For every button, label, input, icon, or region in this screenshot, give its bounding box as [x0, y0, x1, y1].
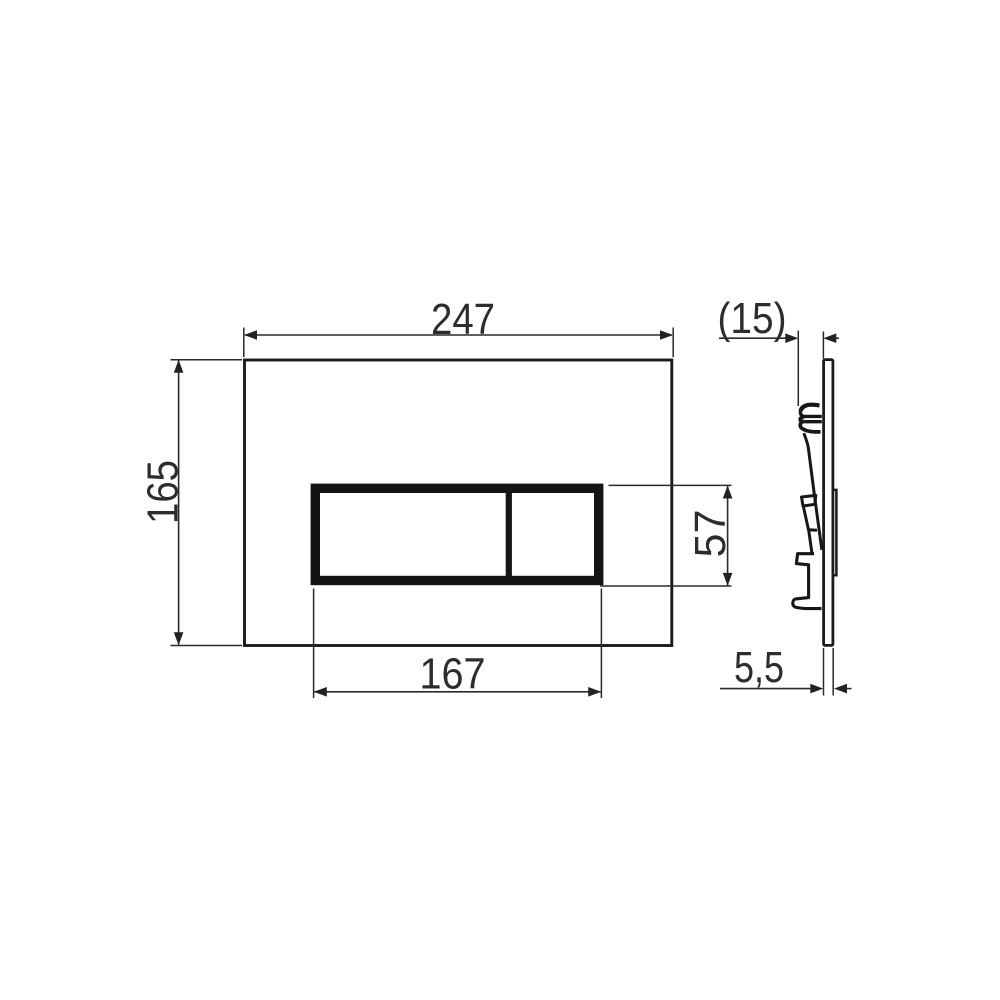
svg-text:165: 165: [139, 460, 188, 524]
svg-text:5,5: 5,5: [734, 643, 784, 692]
svg-text:(15): (15): [718, 294, 787, 343]
svg-text:57: 57: [686, 510, 735, 558]
svg-text:247: 247: [431, 295, 495, 344]
svg-text:167: 167: [420, 650, 486, 699]
